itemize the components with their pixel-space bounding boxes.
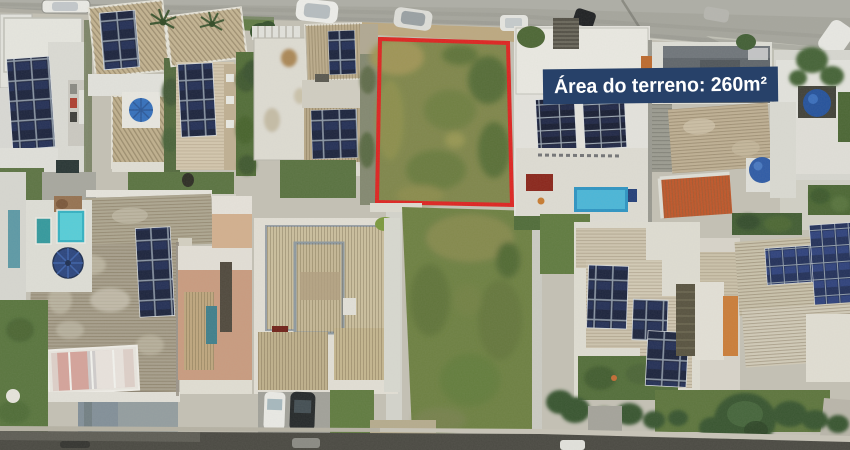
svg-text:Área do terreno: 260m²: Área do terreno: 260m² [554, 72, 768, 98]
